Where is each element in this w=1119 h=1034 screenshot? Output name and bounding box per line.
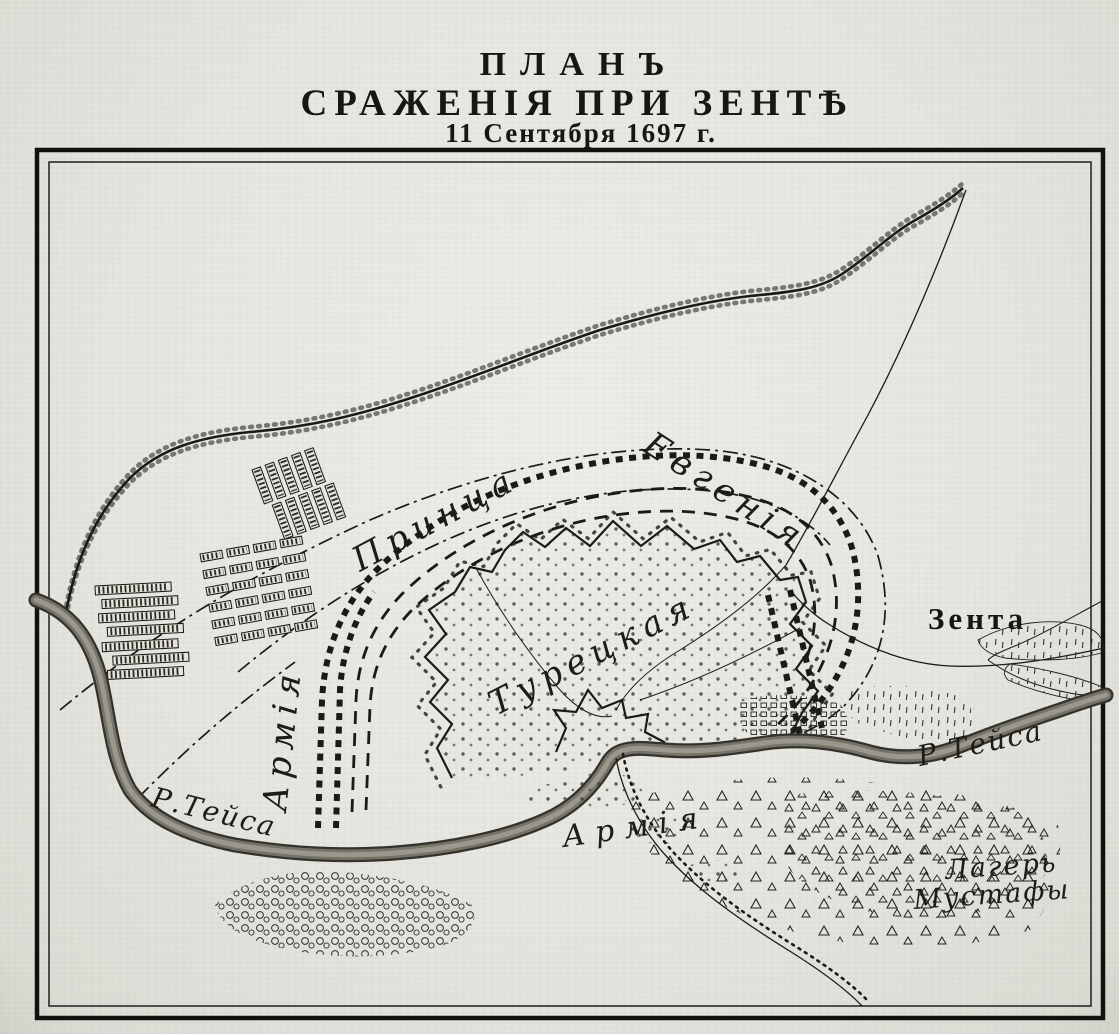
- map-title-line1: ПЛАНЪ: [480, 46, 679, 83]
- grove-trees: [215, 871, 475, 956]
- troop-block-upper: [252, 445, 346, 541]
- title-block: ПЛАНЪ СРАЖЕНІЯ ПРИ ЗЕНТѢ 11 Сентября 169…: [300, 46, 853, 148]
- label-zenta: Зента: [928, 601, 1027, 636]
- battle-map-drawing: ПЛАНЪ СРАЖЕНІЯ ПРИ ЗЕНТѢ 11 Сентября 169…: [0, 0, 1119, 1034]
- troop-block-middle: [200, 536, 318, 645]
- label-army-vertical: Армія: [255, 665, 310, 814]
- troop-block-left: [95, 581, 190, 680]
- battle-map-page: ПЛАНЪ СРАЖЕНІЯ ПРИ ЗЕНТѢ 11 Сентября 169…: [0, 0, 1119, 1034]
- map-title-date: 11 Сентября 1697 г.: [445, 118, 717, 148]
